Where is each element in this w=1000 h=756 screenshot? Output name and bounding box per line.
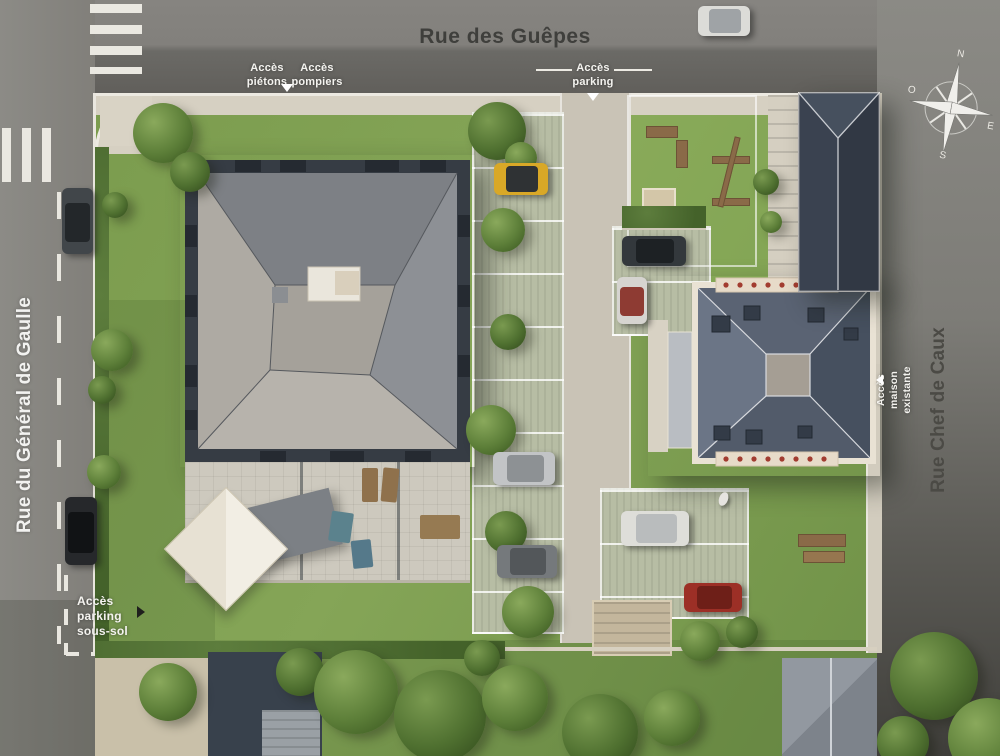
compass-rose: N E S O bbox=[897, 39, 1000, 167]
cars-layer bbox=[0, 0, 1000, 756]
access-existing-house-arrow-icon bbox=[876, 375, 883, 385]
car-parking-dark bbox=[622, 236, 686, 266]
car-roof bbox=[636, 239, 674, 263]
car-roof bbox=[68, 512, 94, 553]
car-roof bbox=[507, 455, 544, 482]
car-street-left-1 bbox=[62, 188, 93, 254]
access-existing-house-label: Accès maison existante bbox=[875, 358, 923, 422]
site-plan: N E S O Rue des Guêpes Rue du Général de… bbox=[0, 0, 1000, 756]
car-parking-redroof bbox=[617, 277, 647, 324]
car-roof bbox=[636, 514, 677, 543]
car-parking-white bbox=[621, 511, 689, 546]
street-label-right: Rue Chef de Caux bbox=[927, 280, 967, 540]
car-parking-red bbox=[684, 583, 742, 612]
access-parking-label: Accès parking bbox=[563, 62, 623, 90]
compass-north-label: N bbox=[956, 48, 965, 60]
access-basement-parking-label: Accès parking sous-sol bbox=[77, 594, 135, 639]
car-roof bbox=[510, 548, 546, 575]
car-street-top bbox=[698, 6, 750, 36]
car-roof bbox=[620, 287, 644, 316]
van-parking-yellow bbox=[494, 163, 548, 195]
access-pedestrians-arrow-icon bbox=[281, 84, 293, 92]
car-street-left-2 bbox=[65, 497, 97, 565]
access-firefighters-label: Accès pompiers bbox=[288, 62, 346, 90]
car-roof bbox=[709, 9, 741, 33]
car-parking-gray bbox=[497, 545, 557, 578]
compass-west-label: O bbox=[907, 84, 917, 96]
street-label-top: Rue des Guêpes bbox=[380, 24, 630, 50]
access-parking-arrow-icon bbox=[587, 93, 599, 101]
car-roof bbox=[506, 166, 538, 192]
car-roof bbox=[697, 586, 732, 609]
compass-east-label: E bbox=[986, 121, 995, 133]
car-roof bbox=[65, 203, 90, 242]
car-parking-silver bbox=[493, 452, 555, 485]
access-basement-parking-arrow-icon bbox=[137, 606, 145, 618]
street-label-left: Rue du Général de Gaulle bbox=[13, 265, 53, 565]
